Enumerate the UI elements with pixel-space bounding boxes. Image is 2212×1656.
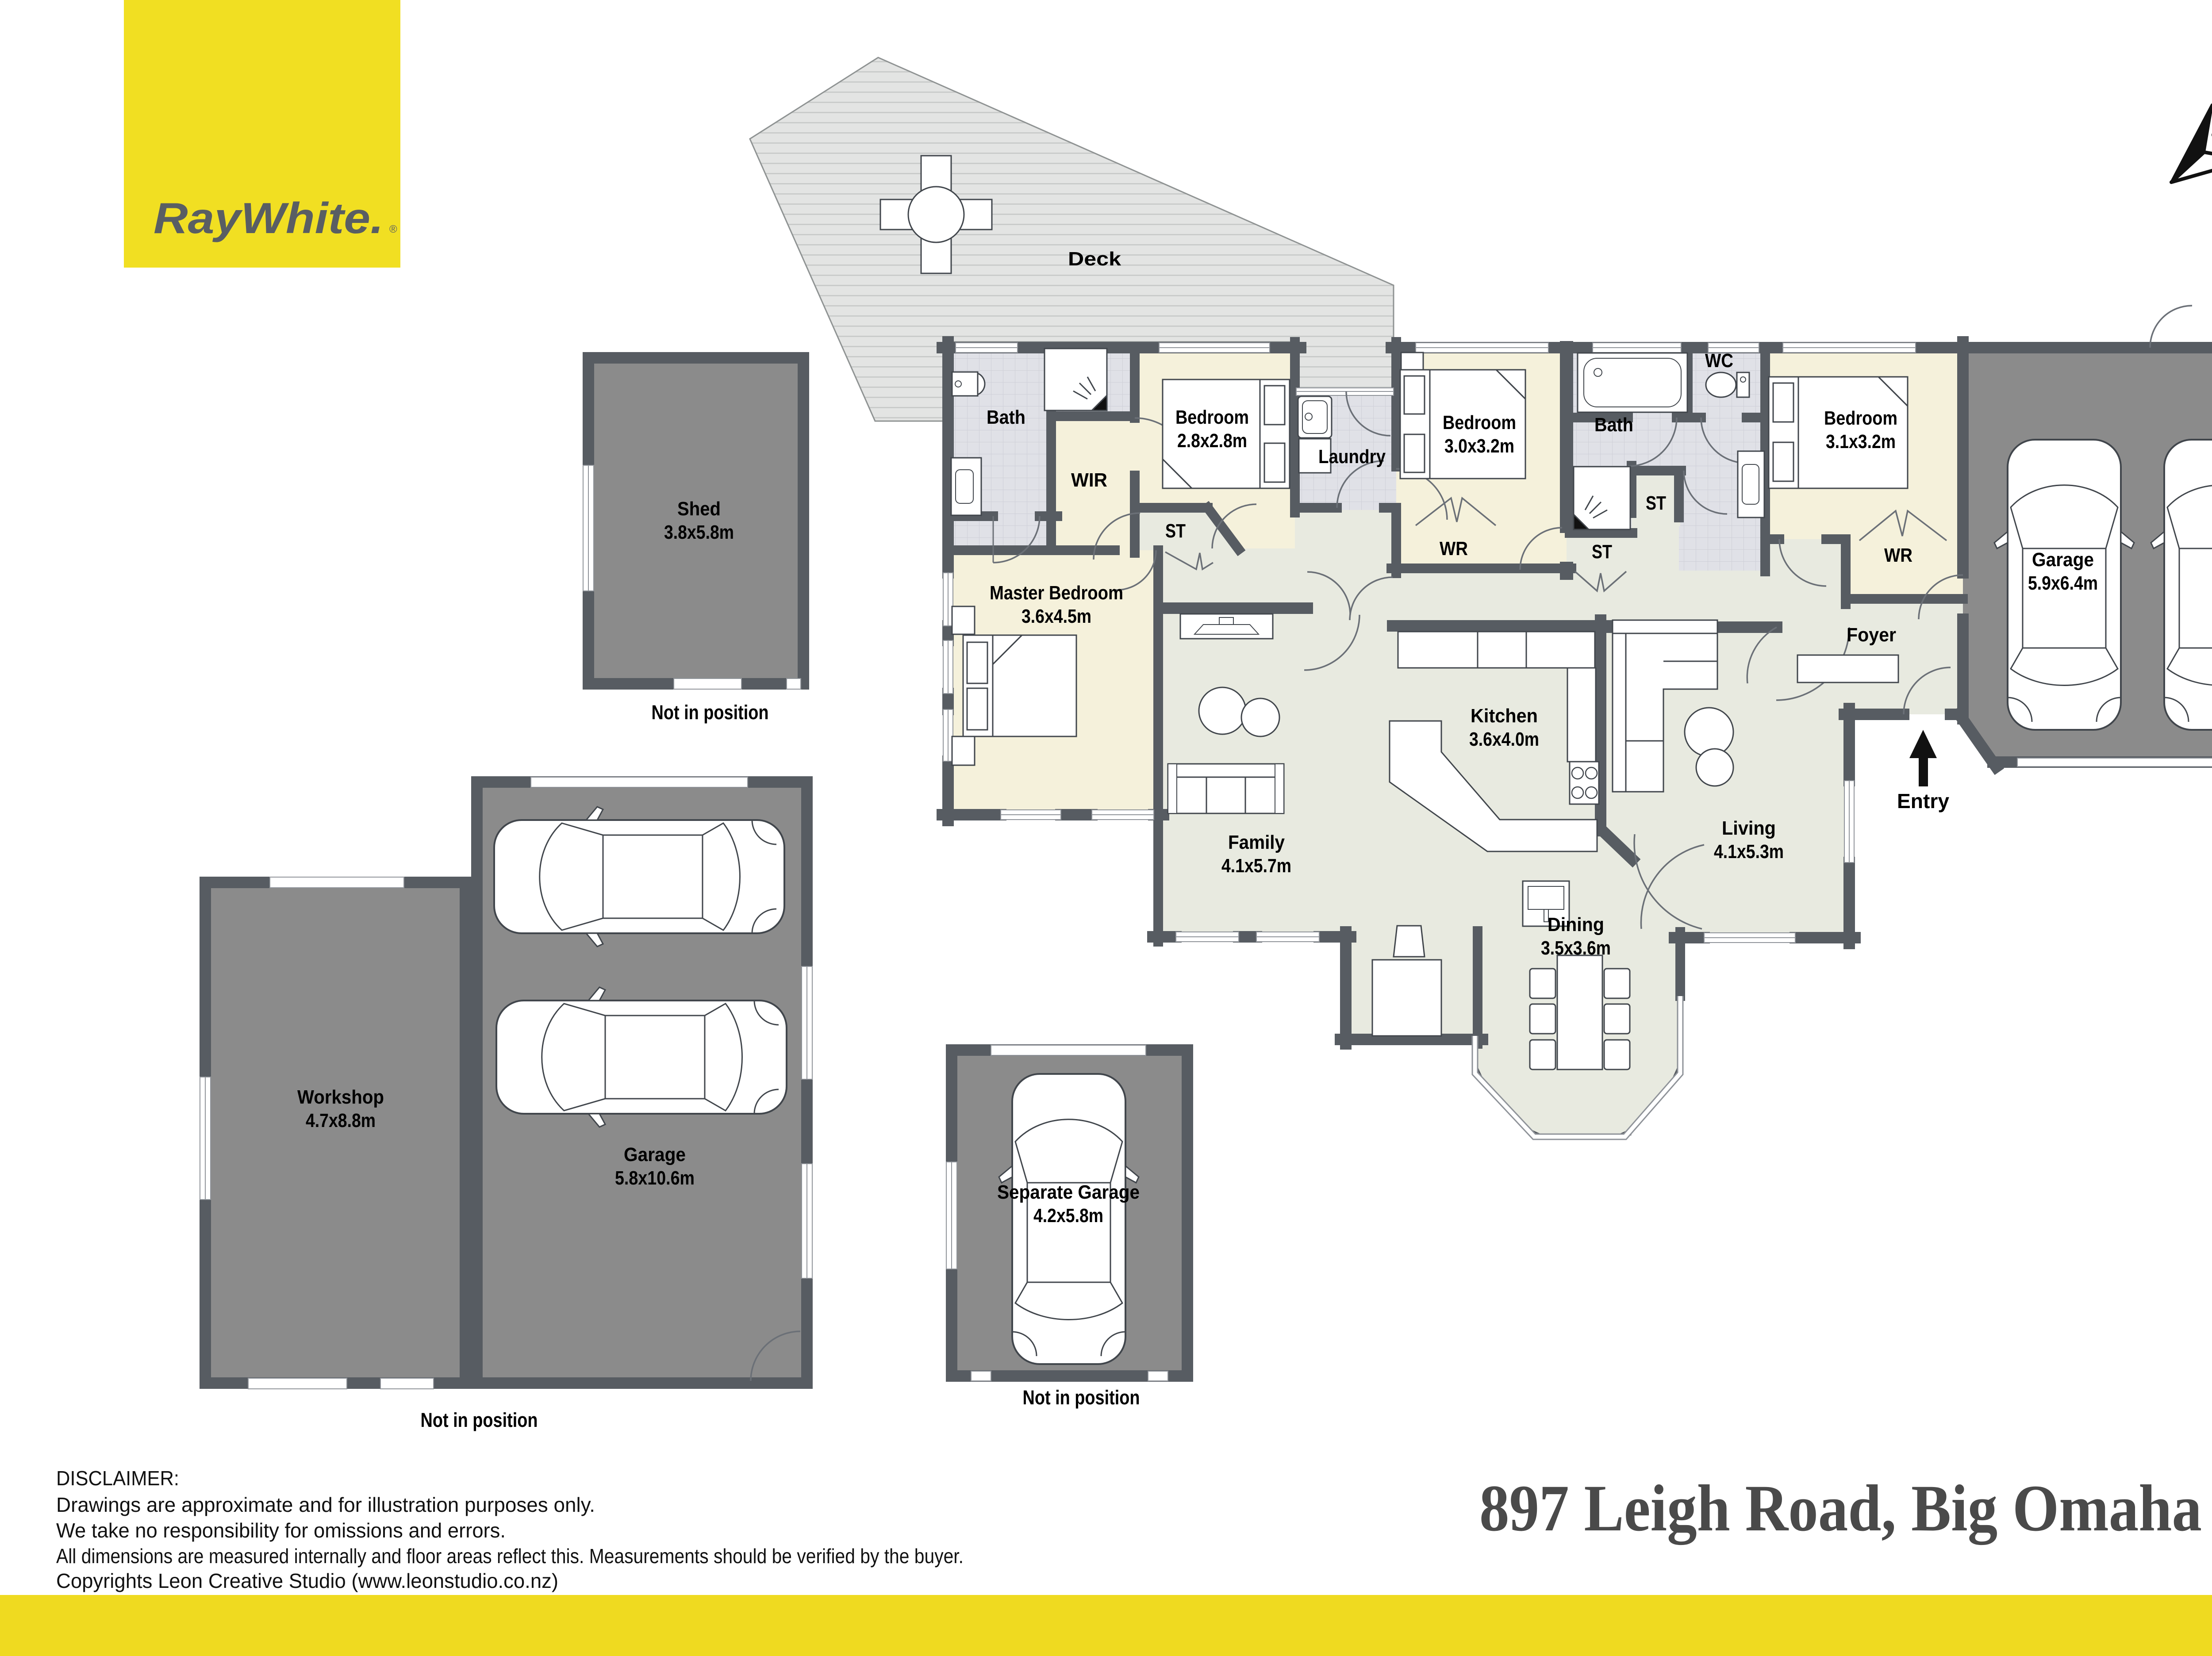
svg-text:4.1x5.3m: 4.1x5.3m [1714,841,1784,862]
svg-text:2.8x2.8m: 2.8x2.8m [1177,430,1247,452]
svg-text:Laundry: Laundry [1318,446,1386,468]
svg-text:3.0x3.2m: 3.0x3.2m [1444,435,1514,457]
svg-text:Garage: Garage [2032,549,2094,571]
svg-text:Separate Garage: Separate Garage [997,1181,1140,1203]
svg-text:WIR: WIR [1071,469,1107,491]
svg-text:3.1x3.2m: 3.1x3.2m [1826,431,1896,452]
svg-text:Master Bedroom: Master Bedroom [990,582,1123,604]
svg-text:ST: ST [1646,492,1666,514]
svg-text:®: ® [389,223,397,235]
svg-text:3.6x4.0m: 3.6x4.0m [1469,728,1539,750]
svg-text:Kitchen: Kitchen [1471,705,1538,727]
svg-text:4.2x5.8m: 4.2x5.8m [1033,1205,1103,1227]
svg-text:Bedroom: Bedroom [1824,407,1897,429]
svg-text:Family: Family [1228,832,1285,853]
svg-text:ST: ST [1165,520,1186,542]
svg-text:4.1x5.7m: 4.1x5.7m [1221,855,1291,877]
svg-text:Bath: Bath [1594,414,1633,436]
svg-text:897 Leigh Road, Big Omaha: 897 Leigh Road, Big Omaha [1479,1472,2202,1545]
svg-text:3.6x4.5m: 3.6x4.5m [1022,606,1091,627]
svg-text:5.8x10.6m: 5.8x10.6m [615,1167,695,1189]
svg-text:Entry: Entry [1897,790,1949,813]
svg-text:DISCLAIMER:: DISCLAIMER: [56,1467,179,1490]
svg-text:WR: WR [1440,538,1468,560]
svg-text:We take no responsibility for: We take no responsibility for omissions … [56,1519,506,1542]
svg-text:Foyer: Foyer [1847,624,1896,646]
svg-text:All dimensions are measured in: All dimensions are measured internally a… [56,1545,964,1568]
svg-text:4.7x8.8m: 4.7x8.8m [306,1110,376,1131]
svg-text:Copyrights Leon Creative Studi: Copyrights Leon Creative Studio (www.leo… [56,1569,558,1592]
svg-text:Drawings are approximate and f: Drawings are approximate and for illustr… [56,1493,595,1516]
svg-text:Shed: Shed [677,498,721,520]
svg-text:Garage: Garage [624,1144,686,1165]
svg-text:Dining: Dining [1548,914,1604,935]
svg-text:WR: WR [1884,544,1912,566]
svg-text:ST: ST [1592,541,1612,563]
svg-text:Bedroom: Bedroom [1175,406,1249,428]
svg-text:Not in position: Not in position [421,1409,538,1431]
svg-text:RayWhite.: RayWhite. [154,194,384,242]
svg-text:Deck: Deck [1068,248,1121,270]
svg-text:Living: Living [1722,817,1776,839]
svg-text:Not in position: Not in position [652,701,769,724]
svg-text:3.8x5.8m: 3.8x5.8m [664,521,734,543]
svg-text:5.9x6.4m: 5.9x6.4m [2028,572,2098,594]
svg-text:WC: WC [1705,350,1733,372]
svg-text:Workshop: Workshop [297,1086,384,1108]
svg-text:Bath: Bath [987,406,1025,428]
svg-text:Bedroom: Bedroom [1443,412,1516,433]
svg-text:Not in position: Not in position [1023,1386,1140,1409]
svg-text:3.5x3.6m: 3.5x3.6m [1541,937,1611,959]
